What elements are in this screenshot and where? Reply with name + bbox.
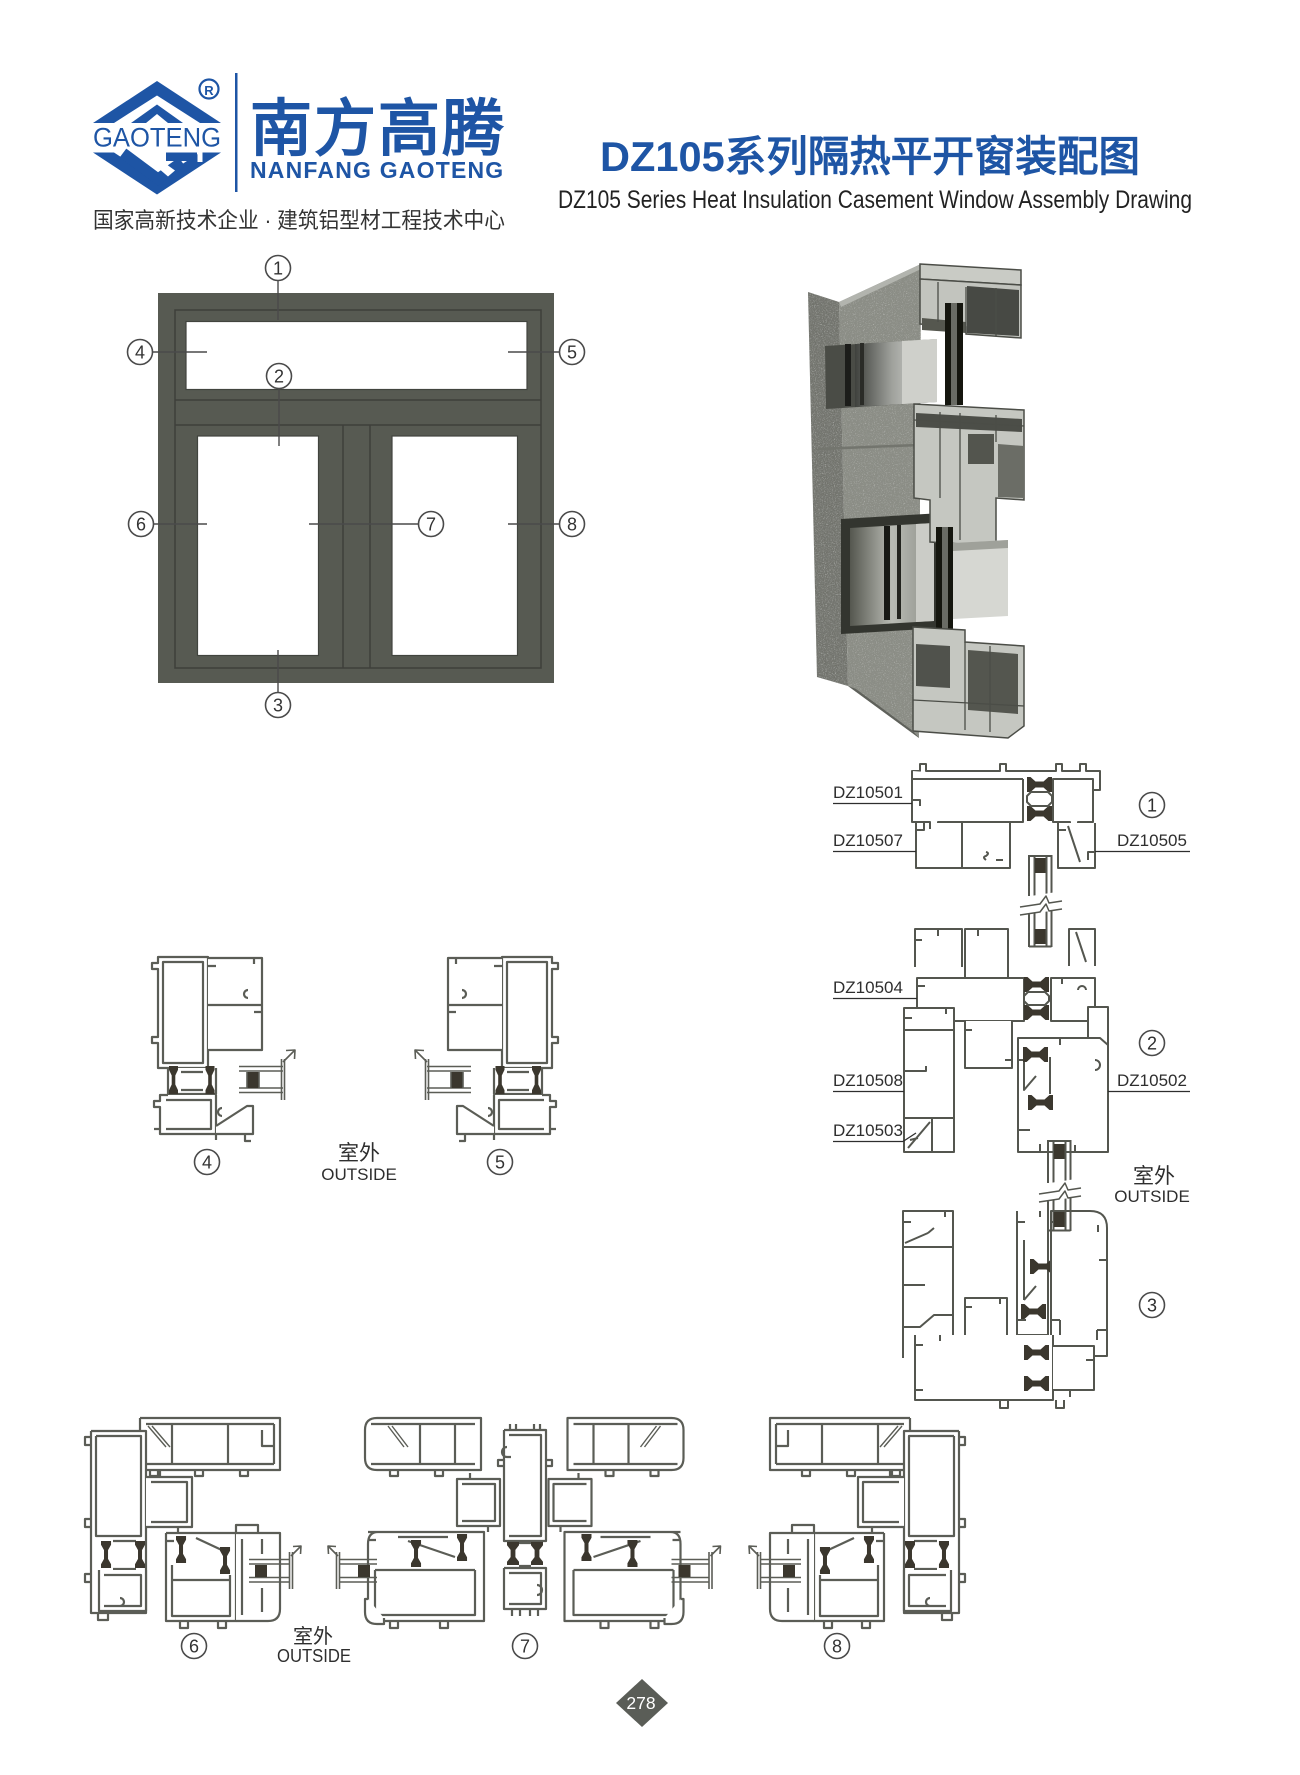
svg-text:2: 2 — [274, 367, 284, 387]
svg-text:6: 6 — [136, 515, 146, 535]
svg-text:GAOTENG: GAOTENG — [93, 123, 221, 153]
svg-text:2: 2 — [1147, 1034, 1157, 1054]
svg-text:NANFANG GAOTENG: NANFANG GAOTENG — [250, 157, 504, 183]
svg-text:6: 6 — [189, 1637, 199, 1657]
svg-text:DZ10508: DZ10508 — [833, 1071, 903, 1090]
svg-text:室外: 室外 — [293, 1625, 333, 1648]
svg-text:4: 4 — [202, 1153, 212, 1173]
svg-text:国家高新技术企业 · 建筑铝型材工程技术中心: 国家高新技术企业 · 建筑铝型材工程技术中心 — [93, 208, 505, 233]
svg-text:OUTSIDE: OUTSIDE — [321, 1165, 397, 1184]
svg-text:8: 8 — [832, 1637, 842, 1657]
svg-text:DZ105 Series Heat Insulation C: DZ105 Series Heat Insulation Casement Wi… — [558, 186, 1192, 214]
svg-text:DZ10501: DZ10501 — [833, 783, 903, 802]
svg-text:5: 5 — [567, 343, 577, 363]
svg-text:室外: 室外 — [338, 1142, 380, 1165]
svg-text:4: 4 — [135, 343, 145, 363]
svg-text:278: 278 — [626, 1693, 655, 1713]
svg-text:7: 7 — [426, 515, 436, 535]
svg-text:DZ10503: DZ10503 — [833, 1121, 903, 1140]
svg-text:OUTSIDE: OUTSIDE — [277, 1646, 351, 1666]
svg-text:7: 7 — [520, 1637, 530, 1657]
svg-text:8: 8 — [567, 515, 577, 535]
svg-text:室外: 室外 — [1133, 1165, 1175, 1188]
svg-text:南方高腾: 南方高腾 — [250, 95, 506, 164]
svg-text:R: R — [204, 83, 214, 98]
svg-text:1: 1 — [1147, 796, 1157, 816]
svg-text:DZ10505: DZ10505 — [1117, 831, 1187, 850]
svg-text:5: 5 — [495, 1153, 505, 1173]
svg-text:OUTSIDE: OUTSIDE — [1114, 1187, 1190, 1206]
svg-text:3: 3 — [1147, 1296, 1157, 1316]
svg-text:1: 1 — [273, 259, 283, 279]
svg-text:DZ10504: DZ10504 — [833, 978, 903, 997]
svg-text:DZ10507: DZ10507 — [833, 831, 903, 850]
svg-text:3: 3 — [273, 696, 283, 716]
svg-text:DZ10502: DZ10502 — [1117, 1071, 1187, 1090]
svg-text:DZ105系列隔热平开窗装配图: DZ105系列隔热平开窗装配图 — [600, 133, 1140, 180]
